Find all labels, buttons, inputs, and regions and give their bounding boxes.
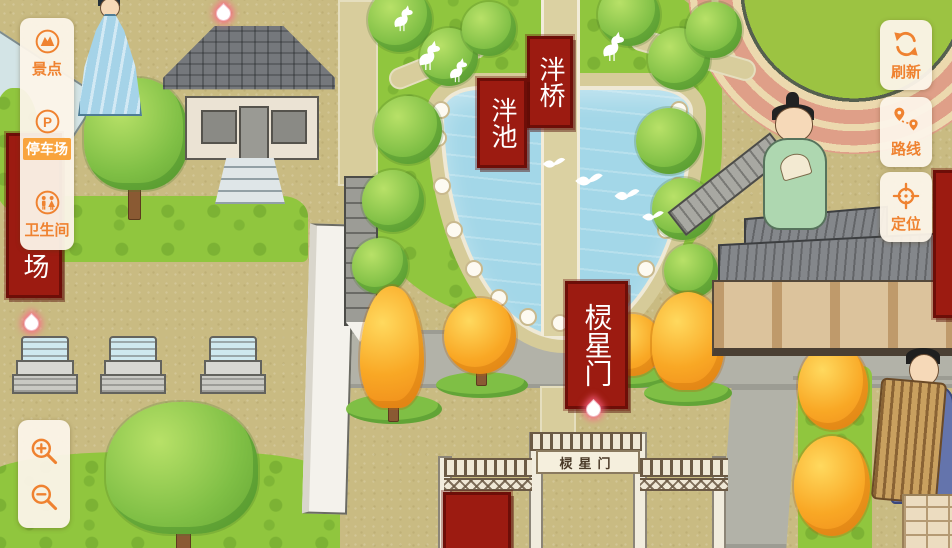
- statue-figure: [72, 0, 144, 114]
- sidebar-item-label: 景点: [32, 58, 62, 79]
- zoom-out-icon[interactable]: [28, 481, 60, 513]
- tree: [362, 170, 424, 232]
- banner-text: 棂星门: [583, 303, 611, 387]
- banner-text: 场: [21, 253, 47, 279]
- house-roof: [163, 26, 335, 98]
- dove-bird: [640, 208, 666, 226]
- tree: [106, 402, 258, 534]
- tree: [352, 238, 408, 294]
- map-pin[interactable]: [213, 3, 234, 24]
- sidebar-item-parking[interactable]: P 停车场: [20, 108, 74, 160]
- egret-bird: [596, 26, 630, 64]
- refresh-label: 刷新: [891, 61, 921, 82]
- route-button[interactable]: 路线: [880, 97, 932, 167]
- refresh-button[interactable]: 刷新: [880, 20, 932, 90]
- dove-bird: [572, 170, 606, 192]
- stone-monument: [200, 336, 262, 392]
- house-door: [239, 106, 269, 160]
- svg-text:P: P: [42, 115, 51, 130]
- gate-lattice-right: [640, 458, 728, 477]
- restroom-icon: [34, 189, 61, 216]
- stone-monument: [100, 336, 162, 392]
- bamboo-slips: [871, 377, 947, 504]
- locate-label: 定位: [891, 213, 921, 234]
- gate-band-right: [640, 478, 728, 491]
- scholar-robe: [763, 138, 827, 230]
- brick-wall: [902, 494, 952, 548]
- stone-monument: [12, 336, 74, 392]
- locate-button[interactable]: 定位: [880, 172, 932, 242]
- banner-lingxing-gate[interactable]: 棂星门: [565, 281, 628, 409]
- scholar-head: [775, 107, 813, 142]
- sidebar-item-label: 卫生间: [24, 219, 69, 240]
- tree: [374, 96, 442, 164]
- dove-bird: [540, 155, 568, 173]
- autumn-tree: [444, 298, 516, 374]
- monument-base: [200, 374, 266, 394]
- autumn-tree: [794, 436, 870, 536]
- banner-text: 泮池: [489, 97, 515, 149]
- zoom-controls-panel: [18, 420, 70, 528]
- dove-bird: [612, 186, 642, 206]
- route-icon: [891, 106, 921, 136]
- scenic-spot-icon: [34, 28, 61, 55]
- egret-bird: [388, 0, 418, 34]
- house-building: [185, 96, 319, 160]
- banner-text: 泮桥: [537, 56, 563, 108]
- sidebar-item-restroom[interactable]: 卫生间: [20, 189, 74, 240]
- statue-dress: [78, 14, 142, 116]
- banner-pan-bridge[interactable]: 泮桥: [527, 36, 573, 128]
- gate-lattice-center: [530, 432, 642, 451]
- gate-band-left: [444, 478, 532, 491]
- sidebar-item-scenic-spots[interactable]: 景点: [20, 28, 74, 79]
- gate-lattice-left: [444, 458, 532, 477]
- tree: [664, 244, 718, 298]
- locate-icon: [891, 181, 921, 211]
- bamboo-scroll-figure: [876, 326, 952, 506]
- monument-base: [100, 374, 166, 394]
- monument-base: [12, 374, 78, 394]
- tree: [686, 2, 742, 58]
- left-toolbar-panel: 景点 P 停车场 卫生间: [20, 18, 74, 250]
- map-pin[interactable]: [21, 313, 42, 334]
- house-window: [271, 110, 307, 144]
- map-canvas[interactable]: 棂星门 场 泮桥 泮池 棂星门 景点 P 停车场: [0, 0, 952, 548]
- parking-icon: P: [34, 108, 61, 135]
- banner-right-edge-partial[interactable]: [933, 170, 952, 318]
- sidebar-item-label-selected: 停车场: [23, 138, 71, 160]
- gate-sign: 棂星门: [536, 450, 640, 474]
- banner-bottom-partial[interactable]: [443, 492, 511, 548]
- tree: [462, 2, 516, 56]
- zoom-in-icon[interactable]: [28, 435, 60, 467]
- refresh-icon: [891, 29, 921, 59]
- egret-bird: [444, 54, 472, 84]
- autumn-tree: [798, 344, 868, 430]
- scholar-figure: [752, 92, 836, 240]
- house-window: [201, 110, 237, 144]
- egret-bird: [412, 36, 446, 72]
- house-steps: [215, 158, 285, 204]
- route-label: 路线: [891, 138, 921, 159]
- banner-pan-pond[interactable]: 泮池: [477, 78, 527, 168]
- tree: [636, 108, 702, 174]
